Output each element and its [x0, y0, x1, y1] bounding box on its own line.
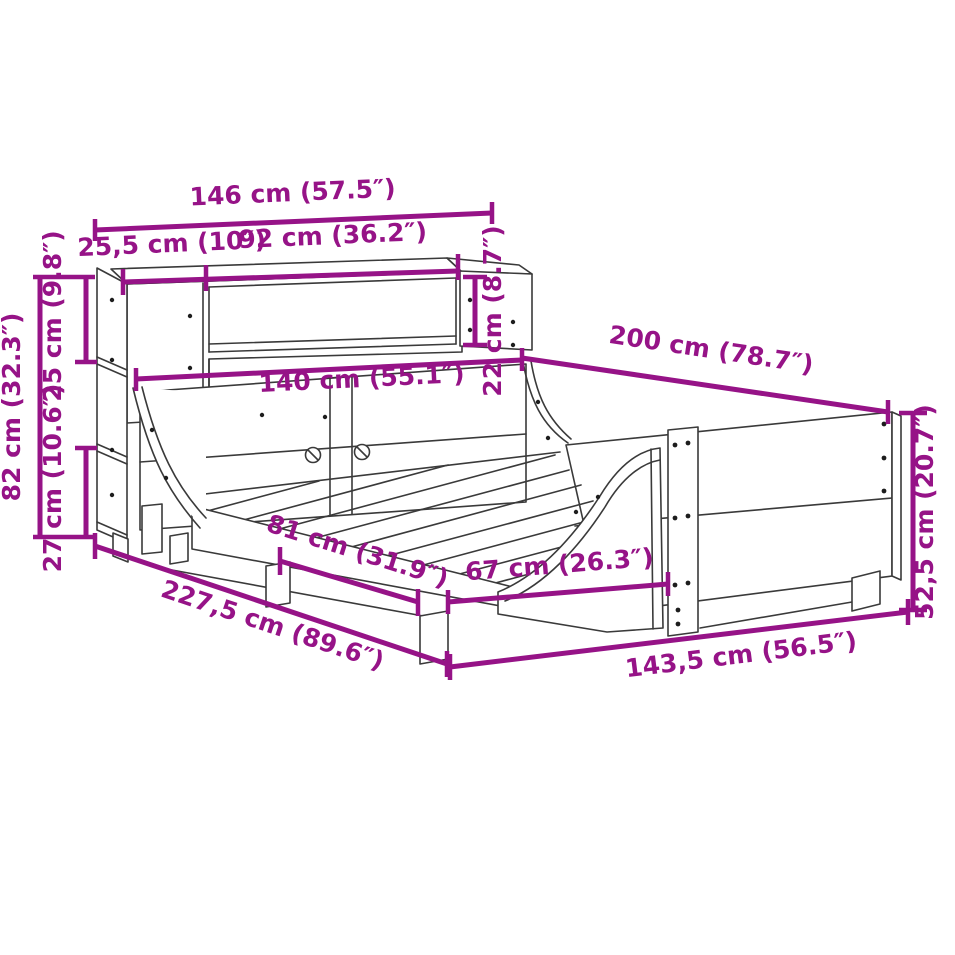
footboard-right-face — [892, 412, 901, 580]
label-bed-length: 200 cm (78.7″) — [607, 320, 815, 379]
footboard-stretcher — [700, 602, 852, 628]
far-side-rail-curve — [523, 361, 571, 443]
label-headboard-total-height: 82 cm (32.3″) — [0, 313, 26, 502]
diagram-canvas: 146 cm (57.5″) 25,5 cm (10″) 92 cm (36.2… — [0, 0, 955, 955]
label-total-width: 146 cm (57.5″) — [189, 174, 396, 212]
leg — [170, 533, 188, 564]
footboard-near-post — [668, 427, 698, 636]
bed-dimension-diagram: 146 cm (57.5″) 25,5 cm (10″) 92 cm (36.2… — [0, 0, 955, 955]
label-footboard-height: 52,5 cm (20.7″) — [910, 404, 939, 620]
label-shelf-lower-section-height: 27 cm (10.6″) — [38, 384, 67, 573]
footboard-right-leg — [852, 571, 880, 611]
dim-line-bed-length — [522, 358, 888, 412]
leg — [142, 504, 162, 554]
label-shelf-opening-height: 22 cm (8.7″) — [478, 225, 507, 396]
label-shelf-top-section-height: 25 cm (9.8″) — [38, 230, 67, 401]
shelf-left-panel — [97, 268, 127, 543]
